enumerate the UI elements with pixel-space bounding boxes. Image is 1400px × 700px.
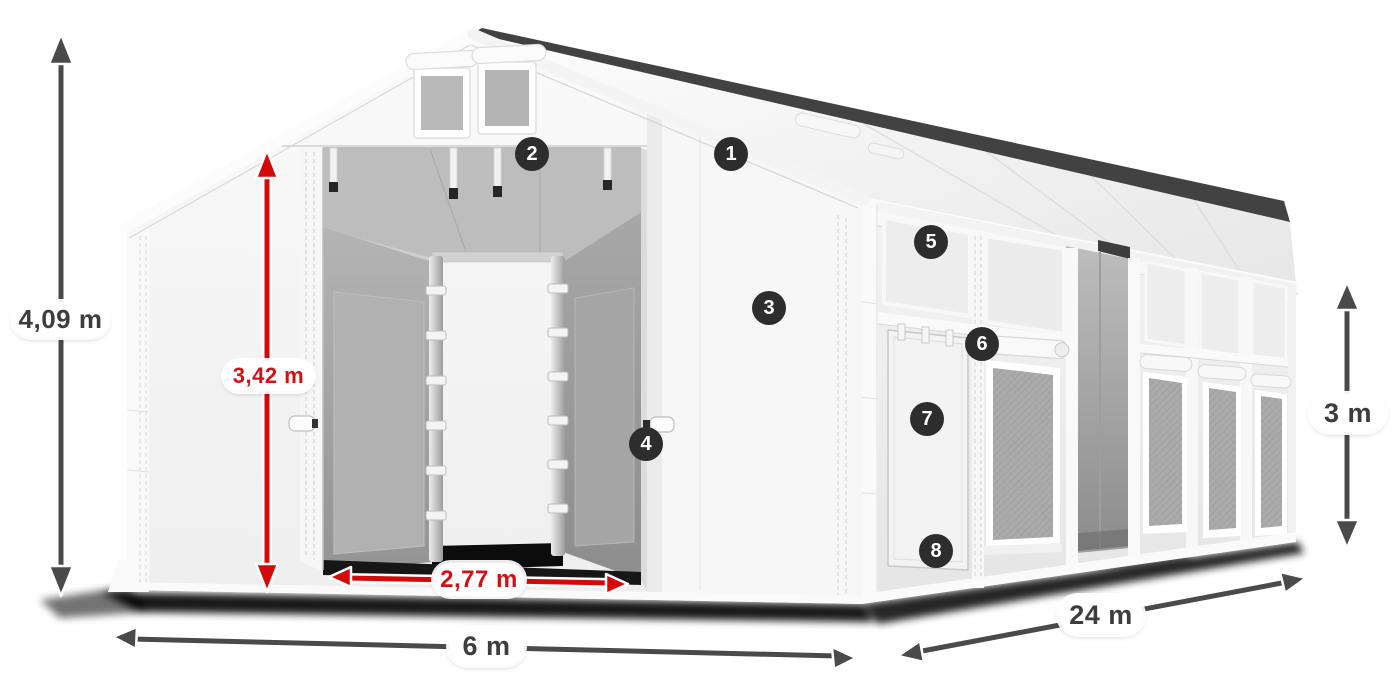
label-side-height: 3 m	[1311, 394, 1385, 432]
window-roller-2	[1140, 354, 1193, 372]
entrance-left-pole	[426, 256, 446, 562]
tent-dimension-diagram: 4,09 m 3,42 m 2,77 m 6 m 24 m 3 m 1 2 3 …	[0, 0, 1400, 700]
callout-badge-3: 3	[752, 291, 786, 325]
mesh-window-2	[1140, 354, 1193, 534]
callout-badge-7: 7	[910, 402, 944, 436]
window-roller-3	[1198, 364, 1247, 380]
side-door	[888, 324, 968, 570]
entrance-right-pole	[548, 256, 568, 556]
callout-badge-4: 4	[629, 427, 663, 461]
gable-vent-right	[472, 44, 547, 134]
callout-badge-8: 8	[919, 534, 953, 568]
label-total-height: 4,09 m	[13, 302, 108, 337]
callout-badge-5: 5	[914, 225, 948, 259]
mesh-window-1	[982, 335, 1069, 555]
vent-roller-right	[472, 44, 547, 64]
vent-roller-left	[406, 50, 479, 70]
tent-illustration	[0, 0, 1400, 700]
label-tent-width: 6 m	[449, 628, 524, 665]
window-roller-4	[1251, 374, 1292, 389]
front-left-edge	[108, 228, 149, 592]
left-gate-handle	[289, 416, 318, 431]
mesh-window-3	[1198, 364, 1247, 538]
callout-badge-6: 6	[965, 327, 999, 361]
label-entrance-width: 2,77 m	[434, 563, 524, 596]
label-entrance-height: 3,42 m	[224, 361, 313, 391]
mesh-window-4	[1251, 374, 1292, 536]
gable-vent-left	[406, 50, 479, 138]
callout-badge-1: 1	[714, 137, 748, 171]
callout-badge-2: 2	[515, 137, 549, 171]
label-tent-length: 24 m	[1059, 596, 1143, 634]
